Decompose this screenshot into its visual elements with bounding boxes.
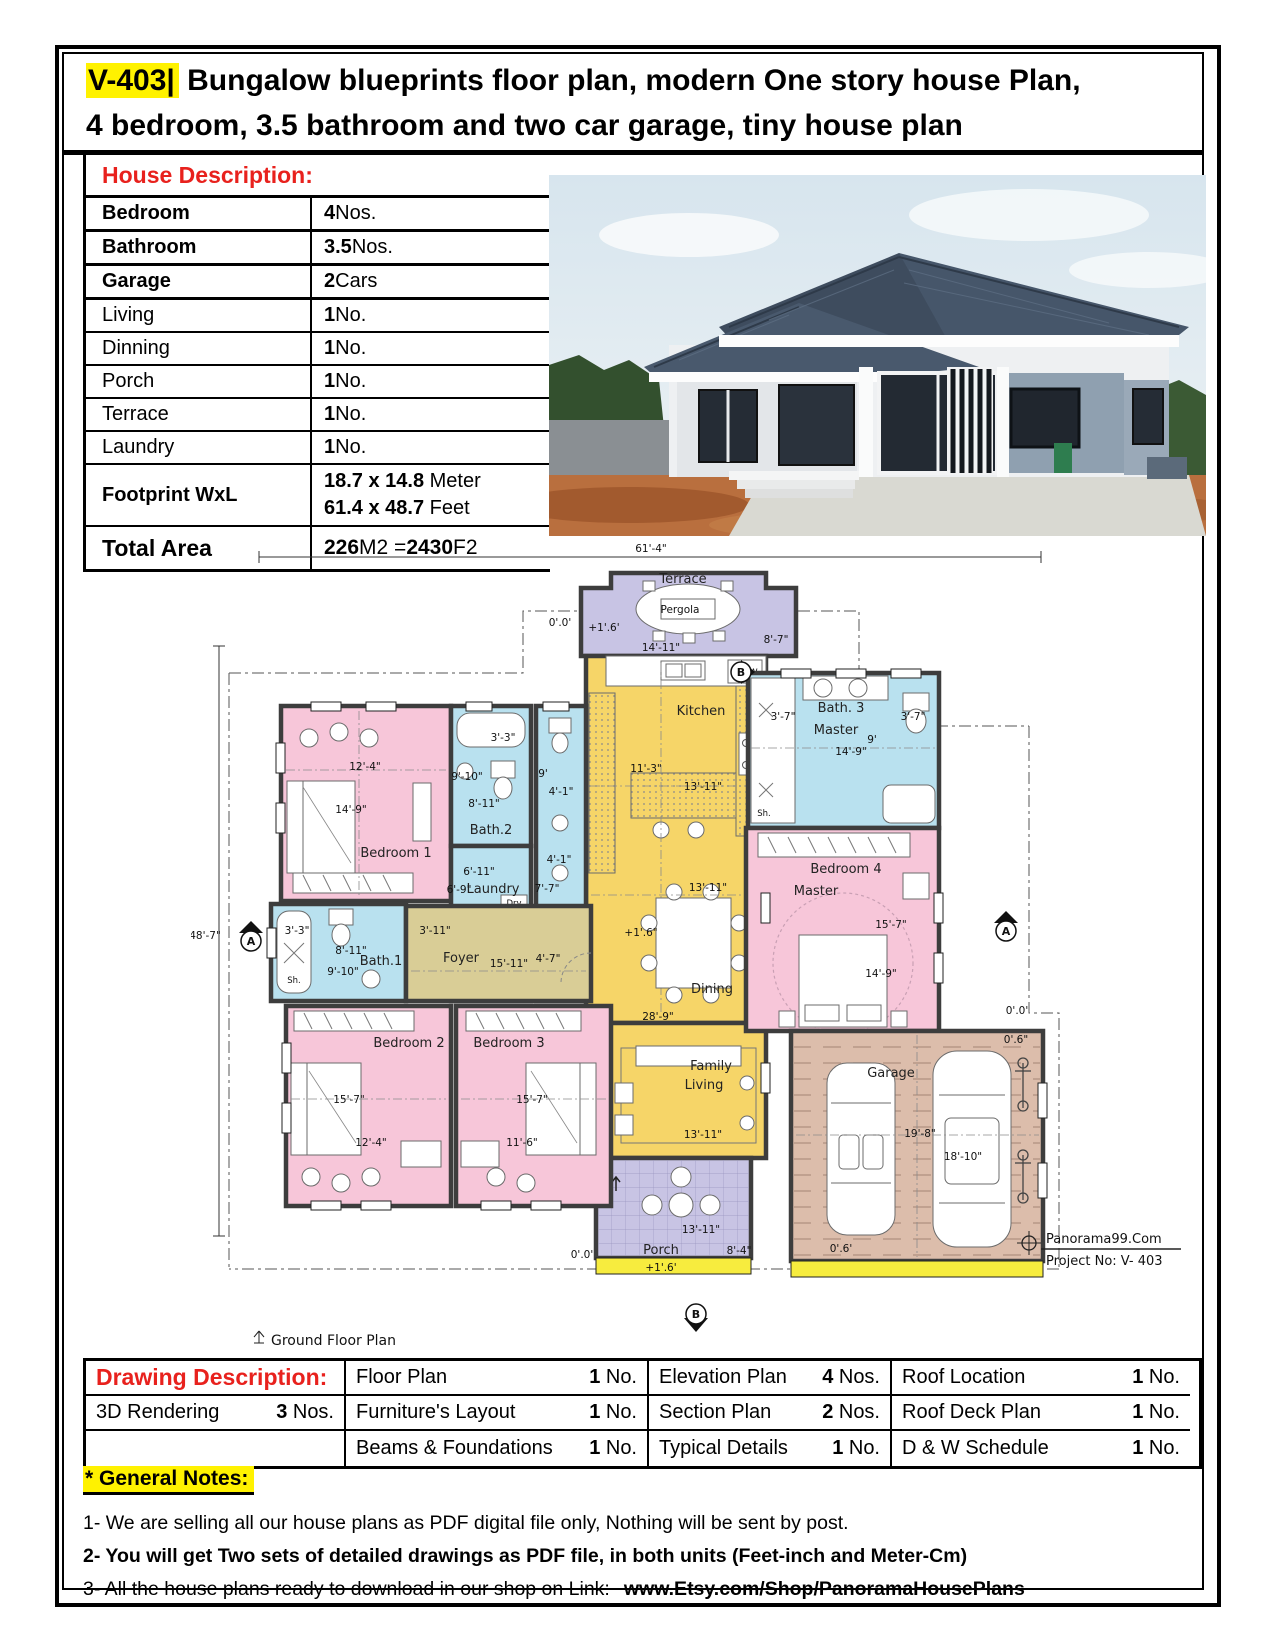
level-grade-porch: 0'.0' — [571, 1249, 593, 1261]
footprint-feet: 61.4 x 48.7 Feet — [324, 495, 470, 522]
dim-porch-width: 13'-11" — [682, 1224, 720, 1236]
table-cell: Furniture's Layout1 No. — [346, 1396, 649, 1431]
note-3: 3- All the house plans ready to download… — [83, 1576, 1195, 1602]
dim-bedroom3-height: 11'-6" — [506, 1137, 538, 1149]
floor-plan: 61'-4" 48'-7" Terrace Pergola 14'-11" 8'… — [191, 543, 1206, 1353]
house-description-table: House Description: Bedroom4 Nos. Bathroo… — [83, 155, 550, 572]
room-bedroom2: Bedroom 2 15'-7" 12'-4" — [286, 1006, 451, 1206]
room-bedroom4: Bedroom 4 Master 15'-7" 14'-9" — [746, 828, 939, 1033]
dim-bath3-width: 14'-9" — [835, 746, 867, 758]
dim-bedroom2-height: 12'-4" — [355, 1137, 387, 1149]
table-row: Garage2 Cars — [86, 266, 550, 300]
general-notes: * General Notes: 1- We are selling all o… — [83, 1466, 1195, 1602]
table-row: Dinning1 No. — [86, 333, 550, 366]
notes-heading: * General Notes: — [83, 1466, 254, 1495]
house-photo — [549, 175, 1206, 536]
shop-link[interactable]: www.Etsy.com/Shop/PanoramaHousePlans — [624, 1578, 1025, 1600]
footprint-row: Footprint WxL 18.7 x 14.8 Meter 61.4 x 4… — [86, 465, 550, 527]
dim-terrace-side: 8'-7" — [764, 634, 789, 646]
table-row: Living1 No. — [86, 300, 550, 333]
dim-foyer-width: 15'-11" — [490, 958, 528, 970]
label-bath3: Bath. 3 — [818, 701, 865, 716]
label-foyer: Foyer — [443, 951, 480, 966]
page-title: V-403| Bungalow blueprints floor plan, m… — [86, 58, 1186, 148]
dim-bedroom4-width: 15'-7" — [875, 919, 907, 931]
level-garage-grade: 0'.0' — [1006, 1005, 1028, 1017]
table-cell: Elevation Plan4 Nos. — [649, 1361, 892, 1396]
label-shower3: Sh. — [757, 809, 771, 819]
dim-wc-9: 9' — [538, 768, 548, 780]
note-2: 2- You will get Two sets of detailed dra… — [83, 1543, 1195, 1569]
plan-code-badge: V-403| — [86, 63, 179, 98]
dim-bedroom1-height: 14'-9" — [335, 804, 367, 816]
footprint-meter: 18.7 x 14.8 Meter — [324, 468, 481, 495]
plan-sheet: V-403| Bungalow blueprints floor plan, m… — [0, 0, 1275, 1650]
page-outer-border: V-403| Bungalow blueprints floor plan, m… — [55, 45, 1221, 1607]
dim-wc-41b: 4'-1" — [547, 854, 572, 866]
label-bedroom2: Bedroom 2 — [373, 1036, 444, 1051]
label-dining: Dining — [691, 982, 733, 997]
svg-text:B: B — [692, 1308, 700, 1321]
dim-garage-width: 19'-8" — [904, 1128, 936, 1140]
level-porch: +1'.6' — [645, 1262, 676, 1274]
level-terrace: +1'.6' — [588, 622, 619, 634]
photo-trash-bin — [1054, 443, 1072, 473]
table-cell: 3D Rendering3 Nos. — [86, 1396, 346, 1431]
label-garage: Garage — [867, 1066, 915, 1081]
dim-garage-depth: 18'-10" — [944, 1151, 982, 1163]
photo-slat-screen — [947, 367, 993, 475]
dim-bedroom3-width: 15'-7" — [516, 1094, 548, 1106]
dim-wc-41a: 4'-1" — [549, 786, 574, 798]
dim-bath2-2: 9'-10" — [451, 771, 483, 783]
note-1: 1- We are selling all our house plans as… — [83, 1510, 1195, 1536]
label-laundry: Laundry — [467, 882, 520, 897]
label-bath2: Bath.2 — [470, 823, 513, 838]
dim-foyer-1: 3'-11" — [419, 925, 451, 937]
dim-porch-depth: 8'-4" — [727, 1245, 752, 1257]
brand-name: Panorama99.Com — [1046, 1232, 1162, 1247]
dim-bath1-1: 3'-3" — [285, 925, 310, 937]
table-row: Laundry1 No. — [86, 432, 550, 465]
label-family: Family — [690, 1059, 732, 1074]
section-marker-a-left: A — [239, 921, 263, 951]
table-row: Terrace1 No. — [86, 399, 550, 432]
section-marker-a-right: A — [994, 911, 1018, 941]
page-inner-border: V-403| Bungalow blueprints floor plan, m… — [62, 52, 1204, 1590]
room-family-living: Family Living 13'-11" — [599, 1023, 766, 1158]
table-cell: Beams & Foundations1 No. — [346, 1431, 649, 1466]
table-cell: Floor Plan1 No. — [346, 1361, 649, 1396]
svg-text:A: A — [247, 935, 256, 948]
table-cell: Section Plan2 Nos. — [649, 1396, 892, 1431]
level-garage: 0'.6" — [1004, 1034, 1028, 1046]
label-pergola: Pergola — [661, 604, 700, 616]
dim-bath1-3: 9'-10" — [327, 966, 359, 978]
table-cell: Typical Details1 No. — [649, 1431, 892, 1466]
table-cell-empty — [86, 1431, 346, 1466]
dim-overall-width: 61'-4" — [635, 543, 667, 555]
drawing-table-title: Drawing Description: — [86, 1361, 346, 1396]
table-row: Bathroom3.5 Nos. — [86, 232, 550, 266]
dim-kitchen-height: 11'-3" — [630, 763, 662, 775]
room-bath3: Bath. 3 Master 9' 14'-9" 3'-7" 3'-7" Sh. — [748, 673, 939, 828]
dim-bath2-1: 3'-3" — [491, 732, 516, 744]
room-foyer: Foyer 3'-11" 15'-11" 4'-7" — [406, 906, 591, 1001]
dim-laundry-1: 6'-11" — [463, 866, 495, 878]
dim-overall-height: 48'-7" — [191, 930, 221, 942]
label-bedroom4-master: Master — [794, 884, 839, 899]
label-shower1: Sh. — [287, 976, 301, 986]
label-bath1: Bath.1 — [360, 954, 403, 969]
level-grade-top: 0'.0' — [549, 617, 571, 629]
svg-text:A: A — [1002, 925, 1011, 938]
section-marker-b-bottom: B — [684, 1304, 708, 1332]
level-floor: +1'.6" — [624, 927, 657, 939]
level-garage-apron: 0'.6' — [830, 1243, 852, 1255]
room-bedroom3: Bedroom 3 15'-7" 11'-6" — [456, 1006, 611, 1206]
dim-foyer-2: 4'-7" — [536, 953, 561, 965]
title-line-1: V-403| Bungalow blueprints floor plan, m… — [86, 58, 1186, 103]
dim-bedroom1-width: 12'-4" — [349, 761, 381, 773]
dim-bath3-shower: 3'-7" — [771, 711, 796, 723]
label-kitchen: Kitchen — [677, 704, 726, 719]
label-bath3-master: Master — [814, 723, 859, 738]
label-porch: Porch — [643, 1243, 679, 1258]
room-terrace: Terrace Pergola 14'-11" 8'-7" +1'.6' 0'.… — [549, 572, 796, 656]
title-line-2: 4 bedroom, 3.5 bathroom and two car gara… — [86, 103, 1186, 148]
room-garage: Garage 19'-8" 18'-10" 0'.0' 0'.6" 0'.6' — [791, 1005, 1043, 1277]
label-bedroom4: Bedroom 4 — [810, 862, 881, 877]
drawing-description-table: Drawing Description: Floor Plan1 No. Ele… — [83, 1358, 1202, 1469]
table-row: Bedroom4 Nos. — [86, 198, 550, 232]
dim-bedroom2-width: 15'-7" — [333, 1094, 365, 1106]
dim-wc-77: 7'-7" — [535, 883, 560, 895]
dim-dining-width: 13'-11" — [689, 882, 727, 894]
dim-terrace-width: 14'-11" — [642, 642, 680, 654]
room-bath2: Bath.2 3'-3" 9'-10" 8'-11" — [451, 706, 531, 846]
label-bedroom3: Bedroom 3 — [473, 1036, 544, 1051]
table-cell: Roof Deck Plan1 No. — [892, 1396, 1190, 1431]
table-cell: Roof Location1 No. — [892, 1361, 1190, 1396]
project-number: Project No: V- 403 — [1046, 1254, 1163, 1269]
svg-text:B: B — [737, 666, 745, 679]
dim-bedroom4-height: 14'-9" — [865, 968, 897, 980]
room-bedroom1: 12'-4" 14'-9" Bedroom 1 — [281, 706, 451, 901]
room-bath1: 3'-3" 8'-11" 9'-10" Bath.1 Sh. — [271, 904, 406, 1001]
table-cell: D & W Schedule1 No. — [892, 1431, 1190, 1466]
label-terrace: Terrace — [658, 572, 706, 587]
label-living: Living — [685, 1078, 724, 1093]
dim-bath3-wc: 3'-7" — [901, 711, 926, 723]
dim-kitchen-width: 13'-11" — [684, 781, 722, 793]
dim-family-width: 13'-11" — [684, 1129, 722, 1141]
dim-bath2-3: 8'-11" — [468, 798, 500, 810]
house-table-title: House Description: — [86, 155, 550, 198]
dim-bath3-9: 9' — [867, 734, 877, 746]
label-bedroom1: Bedroom 1 — [360, 846, 431, 861]
table-row: Porch1 No. — [86, 366, 550, 399]
label-ground-floor-plan: Ground Floor Plan — [271, 1333, 396, 1349]
